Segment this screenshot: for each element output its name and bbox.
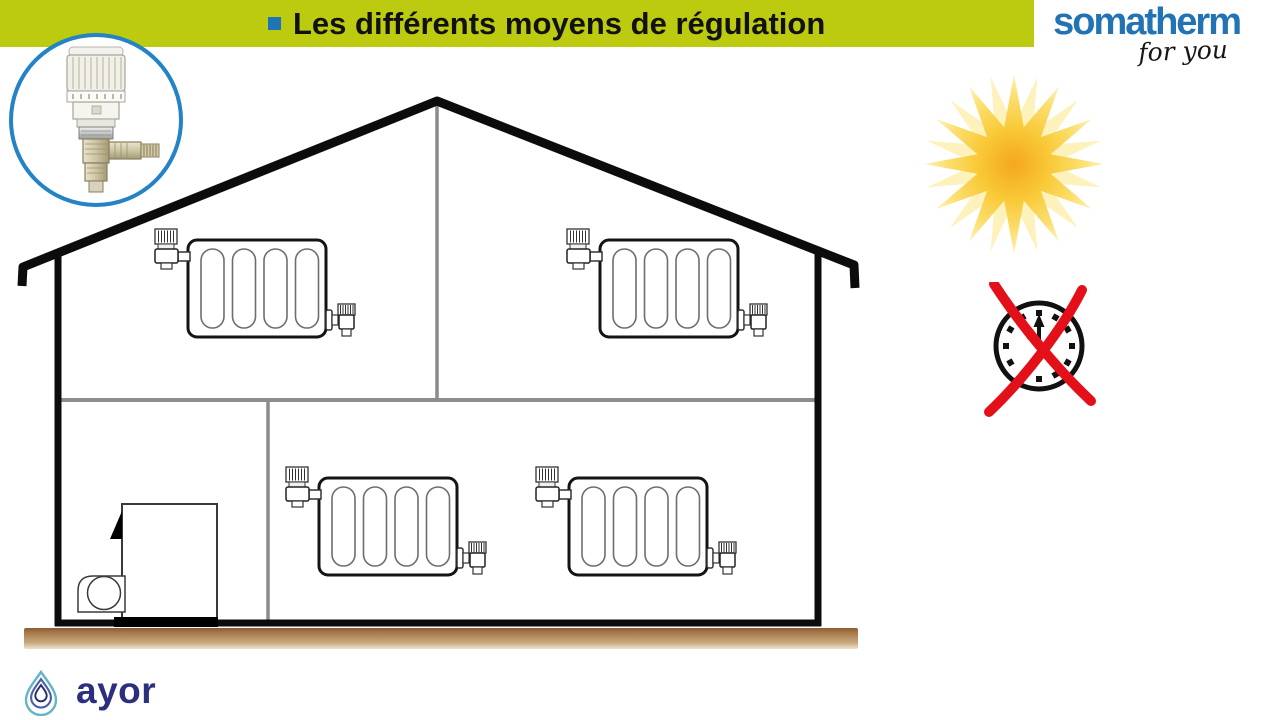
somatherm-logo: somatherm for you [1053, 4, 1240, 67]
page-title: Les différents moyens de régulation [293, 6, 825, 42]
no-timer-clock-icon [970, 282, 1120, 417]
radiator-upper-left [155, 229, 355, 337]
header-title-wrap: Les différents moyens de régulation [268, 6, 825, 42]
thermostatic-valve-illustration [13, 37, 179, 203]
bullet-square-icon [268, 17, 281, 30]
header-bar: Les différents moyens de régulation [0, 0, 1034, 47]
thermostatic-valve-badge [9, 33, 183, 207]
radiator-lower-right [536, 467, 736, 575]
ayor-logo: ayor [18, 666, 156, 716]
boiler [78, 504, 218, 627]
water-drop-icon [18, 666, 64, 716]
ayor-wordmark: ayor [76, 670, 156, 712]
ground [24, 628, 858, 649]
radiator-upper-right [567, 229, 767, 337]
radiator-lower-left [286, 467, 486, 575]
sun-icon [902, 52, 1126, 274]
somatherm-tagline: for you [1053, 35, 1229, 70]
